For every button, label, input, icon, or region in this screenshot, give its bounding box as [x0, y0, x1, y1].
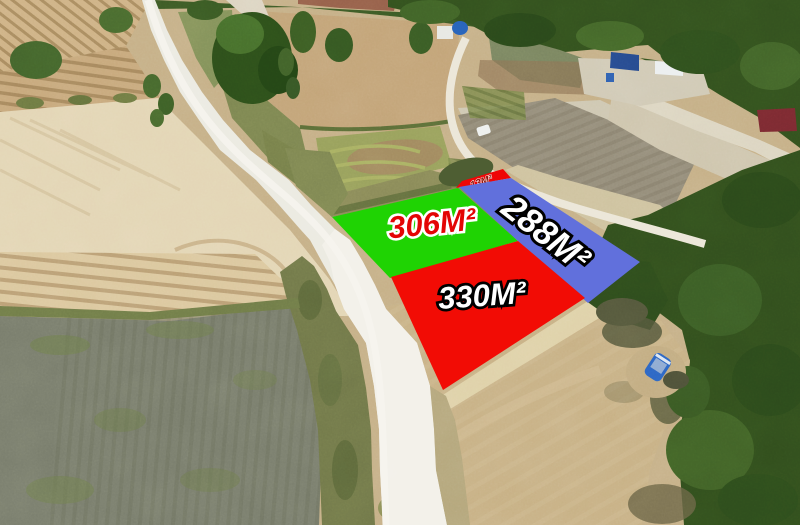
svg-text:330M²: 330M²: [437, 275, 528, 316]
